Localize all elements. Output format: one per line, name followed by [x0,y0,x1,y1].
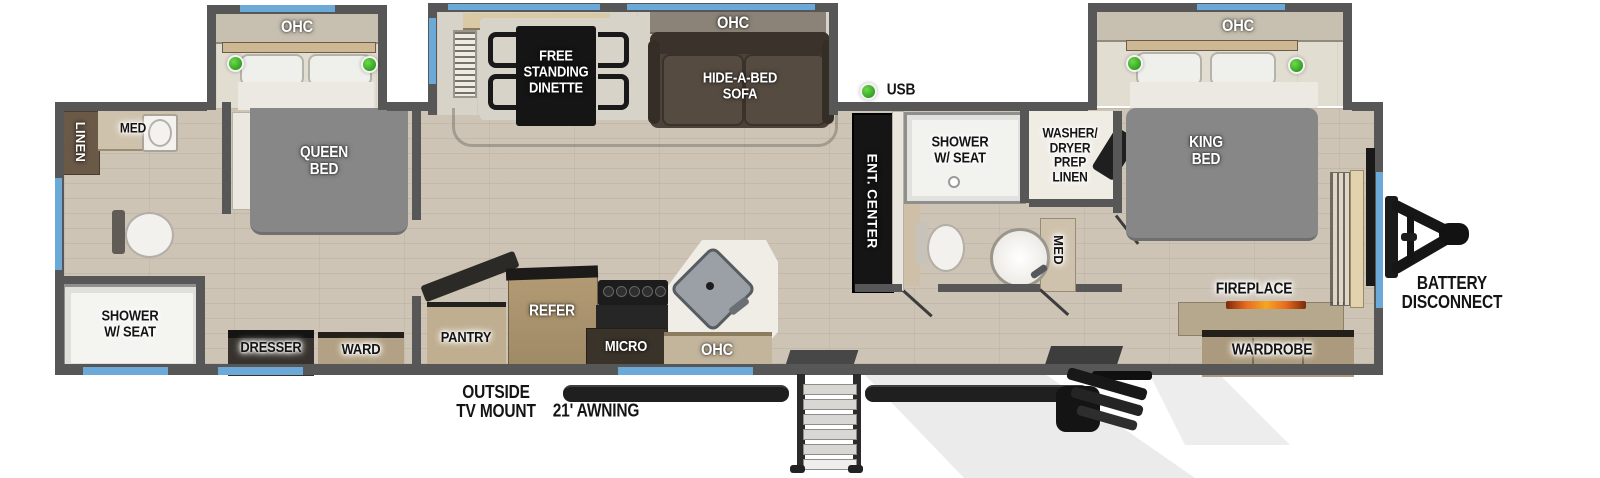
rear-shower-label: SHOWER W/ SEAT [101,308,158,340]
window-strip [55,178,62,270]
king-bed-label: KING BED [1189,135,1223,169]
awning-rail [563,385,789,402]
reading-light-indicator [363,58,376,71]
king-bed [1126,108,1318,241]
wall [222,102,231,214]
wall [55,102,207,111]
usb-label: USB [887,83,916,100]
stove-burner [655,286,666,297]
entry-threshold [1045,346,1123,365]
window-strip [240,5,335,12]
slideout-wall [1343,3,1352,110]
reading-light-indicator [1290,59,1303,72]
wall [1113,111,1122,213]
toilet-tank [916,222,928,264]
pillow [1136,52,1202,86]
window-strip [618,367,753,375]
pillow [1210,52,1276,86]
sofa-label: HIDE-A-BED SOFA [703,70,777,102]
window-strip [627,4,815,10]
ohc-label: OHC [281,18,313,36]
washer-dryer-label: WASHER/ DRYER PREP LINEN [1043,126,1098,185]
folded-entry-step [1048,368,1158,440]
fireplace-flame [1226,301,1306,309]
dinette-chair [598,32,629,68]
sofa-armrest [648,40,660,124]
med-label: MED [120,121,146,136]
toilet [125,212,174,258]
stove-burner [616,286,627,297]
step-rung [803,414,857,425]
wardrobe-label: WARDROBE [1232,343,1312,360]
step-rung [803,429,857,440]
stove-burner [603,286,614,297]
window-strip [448,4,600,10]
window-strip [83,367,168,375]
wall [58,276,205,284]
refer-label: REFER [529,304,575,321]
shower-drain [948,176,960,188]
partition-wall [892,111,904,291]
queen-bed-label: QUEEN BED [300,145,348,179]
med-label: MED [1051,235,1065,265]
toilet [927,224,965,272]
hitch-jack-handle [1401,233,1417,241]
round-sink [990,228,1050,288]
wall [838,102,1088,111]
bedside-counter [232,112,252,210]
toilet-tank [112,210,125,254]
wall [196,276,205,368]
wall [1029,199,1122,207]
stove-body [596,305,668,329]
stove-burner [629,286,640,297]
sink-basin [148,119,172,147]
wall [1076,284,1122,292]
closet-door [1350,170,1364,308]
wall [412,102,421,220]
cabinet-shelf [222,42,376,53]
window-strip [1197,4,1285,10]
usb-port-indicator [862,85,875,98]
linen-label: LINEN [73,122,87,163]
entry-steps [788,372,868,474]
wall [1020,111,1029,203]
rv-floorplan-diagram: OHC FREE STANDING DINETTE HIDE-A-BED SOF… [0,0,1600,478]
hitch-coupler [1439,223,1469,245]
ground-shadow [1150,375,1290,445]
stove-burner [642,286,653,297]
entry-threshold [786,350,859,365]
slideout-wall [1088,3,1097,110]
wall [412,296,421,366]
battery-disconnect-label: BATTERY DISCONNECT [1402,274,1503,312]
dresser-label: DRESSER [240,340,301,356]
window-strip [429,18,436,84]
ohc-label: OHC [717,14,749,32]
window-strip [218,367,303,375]
dinette-chair [488,32,519,68]
wall-tv [1366,148,1375,286]
pantry-label: PANTRY [441,330,492,346]
bed-sheet [1130,82,1318,108]
ent-center-label: ENT. CENTER [865,153,880,248]
wall [938,284,1040,292]
dinette-chair [488,74,519,110]
main-shower-label: SHOWER W/ SEAT [931,134,988,166]
ohc-label: OHC [1222,17,1254,35]
micro-label: MICRO [605,339,647,355]
step-rung [803,444,857,455]
reading-light-indicator [229,57,242,70]
outside-tv-mount-label: OUTSIDE TV MOUNT [456,383,535,421]
cabinet-shelf [1126,40,1298,51]
dinette-label: FREE STANDING DINETTE [523,48,588,95]
slideout-wall [829,3,838,115]
refrigerator [508,274,598,370]
wall [387,102,428,111]
step-foot [790,465,805,473]
overhead-cabinet [1097,12,1343,42]
step-foot [848,465,863,473]
awning-label: 21' AWNING [553,402,640,421]
step-rung [803,399,857,410]
tv-cabinet [453,30,477,98]
fireplace-label: FIREPLACE [1216,282,1292,299]
slideout-wall [207,5,216,110]
reading-light-indicator [1128,57,1141,70]
step-rung [803,384,857,395]
window-strip [1376,172,1383,308]
slideout-wall [378,5,387,110]
bed-sheet [238,82,374,110]
wall [855,284,902,292]
ward-label: WARD [342,342,381,358]
dinette-chair [598,74,629,110]
sofa-back [650,32,830,54]
sink-drain [706,282,714,290]
ohc-label: OHC [701,341,733,359]
louvered-closet [1330,172,1352,306]
trailer-hitch [1383,190,1478,285]
